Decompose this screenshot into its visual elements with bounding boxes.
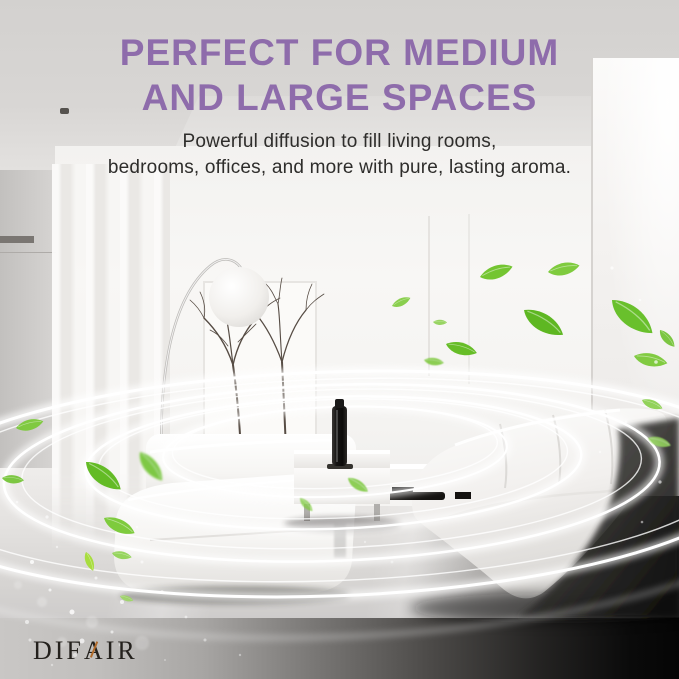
sparkle-dot	[16, 501, 19, 504]
leaf-icon	[478, 262, 514, 282]
sparkle-dot	[95, 577, 98, 580]
logo-accent-letter: A	[84, 636, 106, 666]
sparkle-dot	[391, 561, 394, 564]
sparkle-dot	[120, 600, 124, 604]
bokeh-dot	[86, 616, 98, 628]
product-marketing-banner: PERFECT FOR MEDIUM AND LARGE SPACES Powe…	[0, 0, 679, 679]
subtitle: Powerful diffusion to fill living rooms,…	[0, 129, 679, 181]
sparkle-dot	[204, 639, 207, 642]
leaf-icon	[632, 348, 668, 371]
logo-text-left: DIF	[33, 636, 84, 665]
brand-logo: DIFAIR	[33, 636, 138, 666]
leaf-icon	[423, 355, 444, 367]
leaf-icon	[657, 327, 677, 350]
sparkle-dot	[56, 546, 58, 548]
sparkle-dot	[29, 639, 32, 642]
leaf-icon	[391, 295, 412, 308]
sparkle-dot	[599, 451, 601, 453]
title-line-1: PERFECT FOR MEDIUM	[0, 30, 679, 75]
sparkle-dot	[136, 526, 138, 528]
sparkle-dot	[239, 654, 241, 656]
leaf-icon	[433, 319, 448, 326]
subtitle-line-2: bedrooms, offices, and more with pure, l…	[0, 155, 679, 181]
title-line-2: AND LARGE SPACES	[0, 75, 679, 120]
sparkle-dot	[70, 610, 75, 615]
logo-text-right: IR	[106, 636, 138, 665]
sparkle-dot	[364, 541, 366, 543]
header: PERFECT FOR MEDIUM AND LARGE SPACES Powe…	[0, 30, 679, 181]
sparkle-dot	[654, 360, 658, 364]
sparkle-dot	[30, 560, 34, 564]
leaf-icon	[444, 337, 478, 360]
sparkle-dot	[45, 515, 48, 518]
sparkle-dot	[185, 616, 188, 619]
leaf-icon	[547, 261, 580, 277]
sparkle-dot	[160, 590, 164, 594]
bokeh-dot	[14, 581, 22, 589]
sparkle-dot	[49, 589, 52, 592]
sparkle-dot	[111, 631, 114, 634]
leaf-icon	[606, 291, 657, 342]
bokeh-dot	[37, 597, 47, 607]
sparkle-dot	[641, 521, 644, 524]
sparkle-dot	[141, 561, 144, 564]
subtitle-line-1: Powerful diffusion to fill living rooms,	[0, 129, 679, 155]
sparkle-dot	[610, 266, 613, 269]
sparkle-dot	[164, 659, 166, 661]
sparkle-dot	[658, 480, 661, 483]
sparkle-dot	[639, 299, 642, 302]
sparkle-dot	[25, 620, 29, 624]
lamp-globe	[209, 267, 269, 327]
leaf-icon	[520, 302, 567, 344]
sparkle-dot	[625, 421, 628, 424]
